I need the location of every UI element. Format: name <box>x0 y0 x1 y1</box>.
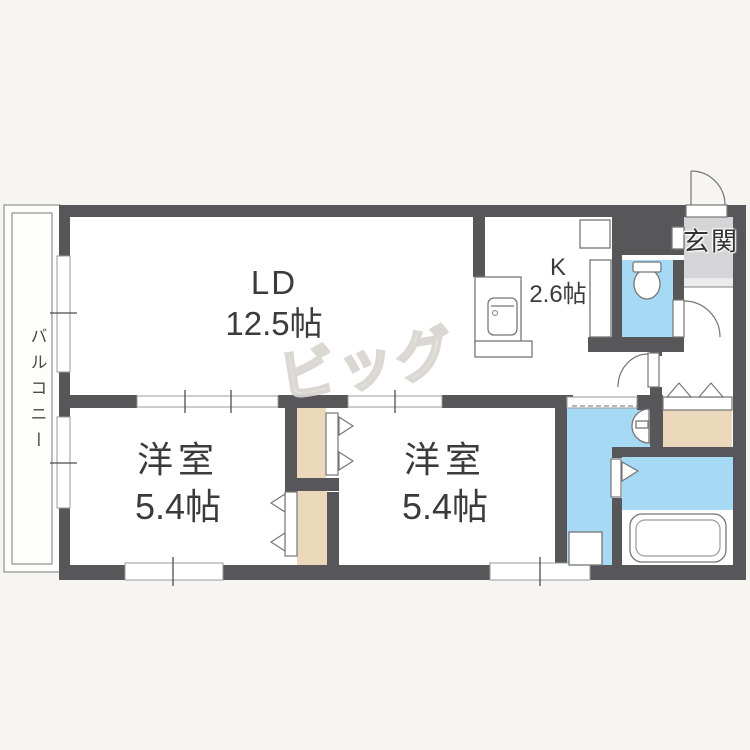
floor-plan: ビッグ LD 12.5帖 K 2.6帖 玄関 洋室 5.4帖 洋室 5.4帖 バ… <box>0 0 750 750</box>
living-dining-name: LD <box>225 262 322 303</box>
washing-machine-pan-icon <box>569 532 602 565</box>
kitchen-size: 2.6帖 <box>529 281 586 308</box>
kitchen-counter-icon <box>590 260 611 337</box>
room-label-living-dining: LD 12.5帖 <box>225 262 322 344</box>
bathtub-icon <box>630 514 726 562</box>
refrigerator-space-icon <box>580 220 610 248</box>
room-label-kitchen: K 2.6帖 <box>529 254 586 308</box>
bedroom-west-name: 洋室 <box>135 436 221 483</box>
room-label-entrance: 玄関 <box>683 222 739 259</box>
bedroom-east-name: 洋室 <box>402 436 488 483</box>
living-dining-size: 12.5帖 <box>225 303 322 344</box>
entrance-door <box>686 171 727 217</box>
room-label-bedroom-west: 洋室 5.4帖 <box>135 436 221 530</box>
washroom-sliding-door <box>567 397 637 408</box>
room-label-balcony: バルコニー <box>25 327 50 457</box>
room-label-bedroom-east: 洋室 5.4帖 <box>402 436 488 530</box>
bedroom-west-size: 5.4帖 <box>135 483 221 530</box>
bedroom-east-size: 5.4帖 <box>402 483 488 530</box>
toilet-icon <box>633 262 661 299</box>
kitchen-name: K <box>529 254 586 281</box>
